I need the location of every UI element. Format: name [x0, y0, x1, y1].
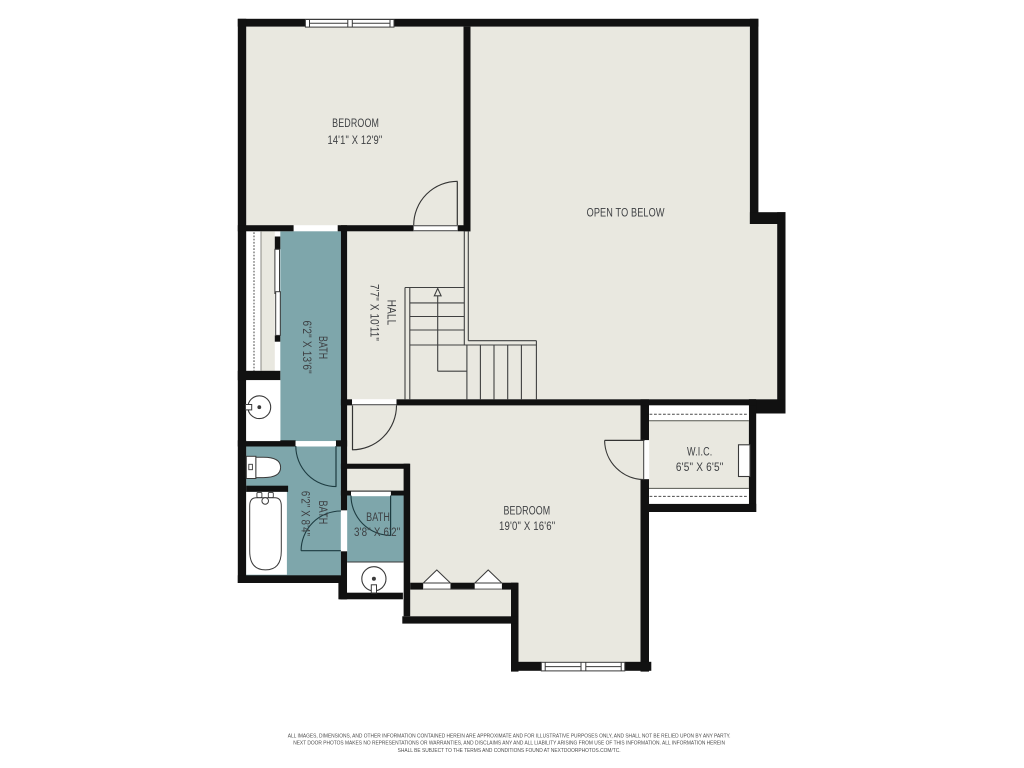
svg-text:BEDROOM: BEDROOM — [503, 504, 550, 518]
svg-text:ALL IMAGES, DIMENSIONS, AND OT: ALL IMAGES, DIMENSIONS, AND OTHER INFORM… — [288, 733, 731, 740]
svg-text:SHALL BE SUBJECT TO THE TERMS: SHALL BE SUBJECT TO THE TERMS AND CONDIT… — [398, 748, 621, 755]
svg-text:BEDROOM: BEDROOM — [332, 117, 379, 131]
svg-text:19'0" X 16'6": 19'0" X 16'6" — [499, 520, 555, 533]
svg-text:W.I.C.: W.I.C. — [687, 445, 712, 459]
svg-text:BATH: BATH — [316, 336, 330, 359]
svg-text:14'1" X 12'9": 14'1" X 12'9" — [327, 134, 382, 147]
svg-text:7'7" X 10'11": 7'7" X 10'11" — [367, 284, 380, 341]
svg-text:OPEN TO BELOW: OPEN TO BELOW — [587, 206, 665, 220]
svg-text:NEXT DOOR PHOTOS MAKES NO REPR: NEXT DOOR PHOTOS MAKES NO REPRESENTATION… — [293, 740, 725, 747]
svg-text:6'2" X 8'4": 6'2" X 8'4" — [298, 491, 311, 536]
svg-text:HALL: HALL — [384, 300, 397, 326]
svg-text:6'5" X 6'5": 6'5" X 6'5" — [676, 461, 724, 474]
svg-text:BATH: BATH — [366, 511, 390, 525]
svg-text:BATH: BATH — [316, 501, 330, 525]
svg-text:3'8" X 6'2": 3'8" X 6'2" — [354, 526, 400, 539]
svg-text:6'2" X 13'6": 6'2" X 13'6" — [300, 321, 313, 374]
